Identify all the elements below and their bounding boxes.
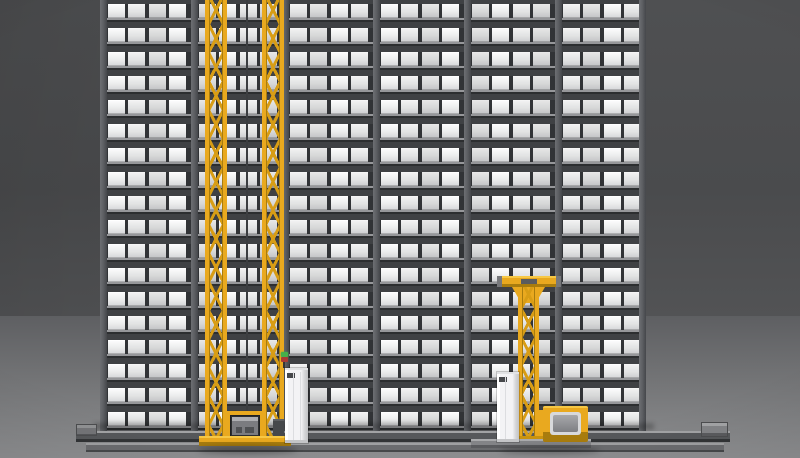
storage-box: [199, 196, 216, 210]
rack-bay: [198, 340, 278, 354]
rack-bay: [198, 364, 278, 378]
storage-box: [331, 268, 348, 282]
storage-box: [331, 316, 348, 330]
storage-box: [401, 4, 418, 18]
rack-bay: [289, 340, 369, 354]
storage-box: [149, 76, 166, 90]
rack-bay: [562, 148, 642, 162]
storage-box: [108, 124, 125, 138]
storage-box: [533, 4, 550, 18]
storage-box: [533, 340, 550, 354]
storage-box: [199, 268, 216, 282]
rack-bay: [107, 268, 187, 282]
storage-box: [472, 364, 489, 378]
storage-box: [128, 28, 145, 42]
storage-box: [381, 316, 398, 330]
rack-bay: [289, 196, 369, 210]
rail-end-stop-left: [76, 424, 97, 436]
cabinet-seam: [505, 376, 506, 439]
rack-bay: [562, 100, 642, 114]
rack-bay: [198, 292, 278, 306]
rack-bay: [107, 148, 187, 162]
storage-box: [260, 268, 277, 282]
storage-box: [290, 340, 307, 354]
storage-box: [563, 4, 580, 18]
storage-box: [381, 124, 398, 138]
rack-post: [639, 0, 646, 434]
storage-box: [583, 268, 600, 282]
rack-bay: [562, 124, 642, 138]
storage-box: [604, 316, 621, 330]
storage-box: [219, 124, 236, 138]
storage-box: [492, 244, 509, 258]
storage-box: [219, 316, 236, 330]
rack-bay: [289, 316, 369, 330]
storage-box: [128, 52, 145, 66]
storage-box: [199, 388, 216, 402]
storage-box: [219, 268, 236, 282]
storage-box: [381, 148, 398, 162]
storage-box: [290, 268, 307, 282]
storage-box: [422, 316, 439, 330]
storage-box: [583, 196, 600, 210]
storage-box: [149, 340, 166, 354]
storage-box: [472, 76, 489, 90]
storage-box: [219, 196, 236, 210]
storage-box: [533, 76, 550, 90]
rack-bay: [380, 220, 460, 234]
rack-bay: [107, 172, 187, 186]
rack-bay: [471, 340, 551, 354]
storage-box: [492, 28, 509, 42]
storage-box: [219, 148, 236, 162]
storage-box: [472, 148, 489, 162]
control-cabinet-right: [497, 372, 519, 442]
storage-box: [128, 4, 145, 18]
storage-box: [219, 244, 236, 258]
storage-box: [422, 196, 439, 210]
storage-box: [219, 340, 236, 354]
storage-box: [533, 28, 550, 42]
storage-box: [563, 196, 580, 210]
storage-box: [422, 52, 439, 66]
storage-box: [260, 292, 277, 306]
storage-box: [128, 316, 145, 330]
storage-box: [513, 4, 530, 18]
storage-box: [422, 28, 439, 42]
rack-bay: [380, 196, 460, 210]
storage-box: [604, 244, 621, 258]
storage-box: [260, 28, 277, 42]
storage-box: [290, 244, 307, 258]
storage-box: [492, 316, 509, 330]
rack-bay: [380, 388, 460, 402]
storage-box: [533, 292, 550, 306]
storage-box: [563, 292, 580, 306]
rack-bay: [107, 4, 187, 18]
rack-bay: [562, 172, 642, 186]
storage-rack: [100, 0, 646, 434]
storage-box: [583, 316, 600, 330]
storage-box: [583, 244, 600, 258]
storage-box: [331, 124, 348, 138]
storage-box: [169, 244, 186, 258]
storage-box: [533, 388, 550, 402]
storage-box: [422, 76, 439, 90]
rack-bay: [198, 100, 278, 114]
storage-box: [533, 100, 550, 114]
storage-box: [240, 4, 257, 18]
storage-box: [260, 52, 277, 66]
storage-box: [442, 28, 459, 42]
storage-box: [563, 100, 580, 114]
storage-box: [108, 76, 125, 90]
rack-bay: [198, 388, 278, 402]
rack-bay: [289, 100, 369, 114]
storage-box: [128, 292, 145, 306]
rack-bay: [380, 28, 460, 42]
storage-box: [583, 220, 600, 234]
storage-box: [492, 292, 509, 306]
rack-bay: [380, 52, 460, 66]
storage-box: [422, 172, 439, 186]
storage-box: [310, 148, 327, 162]
storage-box: [260, 220, 277, 234]
storage-box: [290, 220, 307, 234]
storage-box: [199, 364, 216, 378]
storage-box: [442, 52, 459, 66]
storage-box: [513, 268, 530, 282]
storage-box: [240, 172, 257, 186]
storage-box: [401, 316, 418, 330]
storage-box: [422, 148, 439, 162]
rack-bay: [198, 76, 278, 90]
storage-box: [533, 52, 550, 66]
storage-box: [128, 340, 145, 354]
storage-box: [401, 244, 418, 258]
storage-box: [472, 316, 489, 330]
storage-box: [149, 292, 166, 306]
storage-box: [310, 388, 327, 402]
rack-bay: [471, 316, 551, 330]
storage-box: [199, 76, 216, 90]
storage-box: [331, 100, 348, 114]
storage-box: [604, 220, 621, 234]
storage-box: [442, 76, 459, 90]
storage-box: [442, 220, 459, 234]
rack-bay: [289, 244, 369, 258]
storage-box: [169, 172, 186, 186]
storage-box: [401, 52, 418, 66]
rack-bay: [289, 268, 369, 282]
storage-box: [472, 340, 489, 354]
storage-box: [290, 52, 307, 66]
storage-box: [219, 220, 236, 234]
cabinet-seam: [300, 372, 301, 440]
storage-box: [472, 4, 489, 18]
storage-box: [533, 172, 550, 186]
storage-box: [128, 124, 145, 138]
storage-box: [422, 244, 439, 258]
rack-bay: [471, 172, 551, 186]
storage-box: [240, 316, 257, 330]
storage-box: [199, 148, 216, 162]
storage-box: [563, 388, 580, 402]
storage-box: [149, 196, 166, 210]
storage-box: [240, 220, 257, 234]
storage-box: [199, 220, 216, 234]
storage-box: [240, 268, 257, 282]
storage-box: [401, 196, 418, 210]
storage-box: [492, 220, 509, 234]
storage-box: [169, 148, 186, 162]
rack-bay: [289, 4, 369, 18]
rack-bay: [289, 148, 369, 162]
storage-box: [513, 76, 530, 90]
storage-box: [401, 76, 418, 90]
storage-box: [331, 364, 348, 378]
storage-box: [513, 196, 530, 210]
rack-bay: [471, 52, 551, 66]
storage-box: [563, 172, 580, 186]
storage-box: [472, 124, 489, 138]
rack-bay: [289, 28, 369, 42]
storage-box: [310, 220, 327, 234]
rack-bay: [107, 292, 187, 306]
rack-bay: [289, 292, 369, 306]
storage-box: [381, 52, 398, 66]
storage-box: [240, 52, 257, 66]
storage-box: [422, 268, 439, 282]
storage-box: [351, 148, 368, 162]
cabinet-seam: [293, 372, 294, 440]
storage-box: [472, 388, 489, 402]
storage-box: [472, 52, 489, 66]
storage-box: [583, 388, 600, 402]
storage-box: [128, 220, 145, 234]
storage-box: [442, 364, 459, 378]
storage-box: [199, 244, 216, 258]
rack-bay: [107, 28, 187, 42]
storage-box: [199, 52, 216, 66]
storage-box: [533, 364, 550, 378]
storage-box: [260, 76, 277, 90]
storage-box: [260, 388, 277, 402]
storage-box: [169, 52, 186, 66]
rack-bay: [107, 52, 187, 66]
storage-box: [381, 292, 398, 306]
storage-box: [199, 100, 216, 114]
twin-crane-floor-shadow: [198, 446, 298, 454]
storage-box: [199, 340, 216, 354]
storage-box: [442, 292, 459, 306]
storage-box: [199, 292, 216, 306]
storage-box: [128, 172, 145, 186]
storage-box: [310, 4, 327, 18]
storage-box: [219, 76, 236, 90]
storage-box: [290, 4, 307, 18]
rack-bay: [562, 340, 642, 354]
rack-bay: [562, 244, 642, 258]
storage-box: [442, 100, 459, 114]
storage-box: [422, 100, 439, 114]
storage-box: [513, 100, 530, 114]
storage-box: [169, 292, 186, 306]
storage-box: [563, 340, 580, 354]
rail-end-stop-right: [701, 422, 728, 437]
storage-box: [381, 268, 398, 282]
storage-box: [331, 388, 348, 402]
storage-box: [108, 196, 125, 210]
storage-box: [381, 364, 398, 378]
storage-box: [149, 364, 166, 378]
storage-box: [533, 268, 550, 282]
storage-box: [290, 292, 307, 306]
rack-bay: [107, 340, 187, 354]
storage-box: [108, 268, 125, 282]
storage-box: [149, 52, 166, 66]
storage-box: [240, 100, 257, 114]
storage-box: [331, 196, 348, 210]
rack-bay: [198, 124, 278, 138]
storage-box: [149, 268, 166, 282]
storage-box: [604, 292, 621, 306]
storage-box: [260, 172, 277, 186]
rack-shadow: [94, 423, 654, 430]
storage-box: [240, 124, 257, 138]
storage-box: [472, 244, 489, 258]
storage-box: [563, 76, 580, 90]
storage-box: [310, 100, 327, 114]
storage-box: [381, 4, 398, 18]
storage-box: [260, 100, 277, 114]
storage-box: [260, 148, 277, 162]
storage-box: [310, 28, 327, 42]
storage-box: [604, 340, 621, 354]
rack-bay: [562, 28, 642, 42]
rack-bay: [562, 76, 642, 90]
storage-box: [381, 172, 398, 186]
storage-box: [149, 316, 166, 330]
storage-box: [401, 100, 418, 114]
storage-box: [401, 364, 418, 378]
storage-box: [401, 220, 418, 234]
control-cabinet-left: [285, 368, 308, 443]
storage-box: [401, 268, 418, 282]
storage-box: [310, 76, 327, 90]
storage-box: [604, 124, 621, 138]
rack-bay: [107, 196, 187, 210]
rack-bay: [471, 148, 551, 162]
storage-box: [604, 52, 621, 66]
rack-bay: [471, 28, 551, 42]
storage-box: [492, 268, 509, 282]
storage-box: [128, 100, 145, 114]
storage-box: [290, 28, 307, 42]
storage-box: [563, 268, 580, 282]
storage-box: [422, 292, 439, 306]
storage-box: [563, 220, 580, 234]
rack-bay: [562, 316, 642, 330]
rack-bay: [471, 268, 551, 282]
storage-box: [563, 52, 580, 66]
storage-box: [513, 220, 530, 234]
rack-bay: [198, 4, 278, 18]
storage-box: [351, 244, 368, 258]
storage-box: [199, 4, 216, 18]
storage-box: [240, 244, 257, 258]
storage-box: [149, 148, 166, 162]
storage-box: [381, 340, 398, 354]
storage-box: [219, 292, 236, 306]
storage-box: [472, 100, 489, 114]
rack-bay: [380, 172, 460, 186]
storage-box: [290, 76, 307, 90]
rack-bay: [562, 4, 642, 18]
storage-box: [563, 148, 580, 162]
rack-bay: [380, 244, 460, 258]
storage-box: [169, 388, 186, 402]
rack-bay: [107, 76, 187, 90]
storage-box: [149, 4, 166, 18]
storage-box: [492, 196, 509, 210]
storage-box: [351, 4, 368, 18]
rack-bay: [562, 268, 642, 282]
rack-bay: [289, 124, 369, 138]
storage-box: [351, 340, 368, 354]
storage-box: [199, 316, 216, 330]
storage-box: [513, 244, 530, 258]
storage-box: [219, 100, 236, 114]
storage-box: [149, 172, 166, 186]
storage-box: [422, 364, 439, 378]
storage-box: [422, 340, 439, 354]
rack-bay: [289, 172, 369, 186]
rack-bay: [380, 364, 460, 378]
storage-box: [310, 316, 327, 330]
storage-box: [199, 124, 216, 138]
storage-box: [290, 172, 307, 186]
storage-box: [351, 388, 368, 402]
storage-box: [169, 364, 186, 378]
storage-box: [108, 100, 125, 114]
storage-box: [149, 124, 166, 138]
storage-box: [169, 220, 186, 234]
warehouse-scene: [0, 0, 800, 458]
storage-box: [604, 196, 621, 210]
rack-bay: [562, 292, 642, 306]
storage-box: [331, 292, 348, 306]
storage-box: [199, 28, 216, 42]
storage-box: [472, 268, 489, 282]
storage-box: [401, 124, 418, 138]
storage-box: [492, 100, 509, 114]
storage-box: [240, 292, 257, 306]
storage-box: [351, 316, 368, 330]
storage-box: [583, 76, 600, 90]
storage-box: [604, 28, 621, 42]
storage-box: [240, 148, 257, 162]
rack-bay: [289, 220, 369, 234]
rack-bay: [198, 268, 278, 282]
storage-box: [290, 316, 307, 330]
storage-box: [290, 100, 307, 114]
rack-bay: [198, 220, 278, 234]
storage-box: [128, 364, 145, 378]
storage-box: [351, 220, 368, 234]
storage-box: [472, 28, 489, 42]
storage-box: [583, 52, 600, 66]
